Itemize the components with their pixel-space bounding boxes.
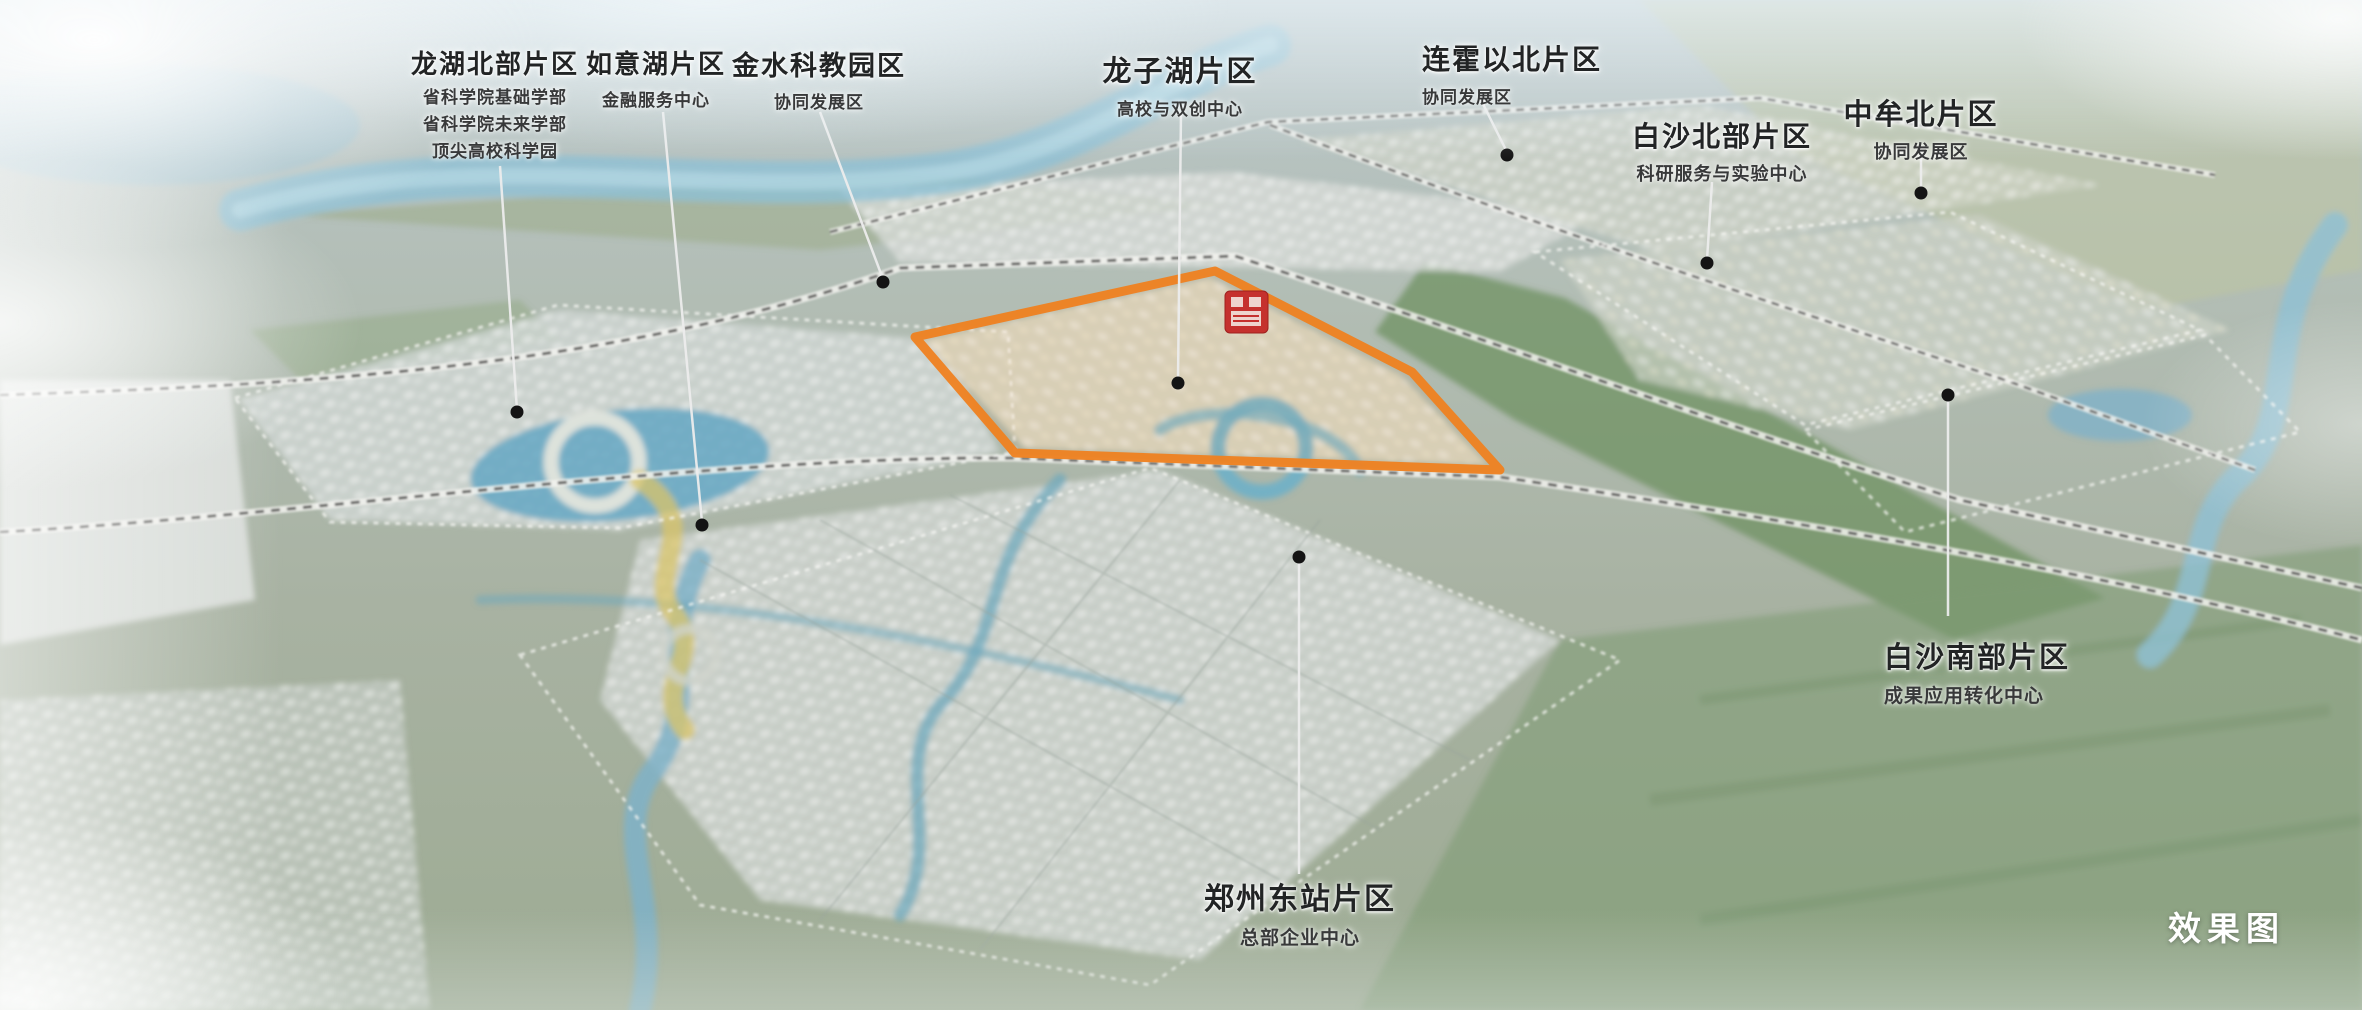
district-subtitle: 成果应用转化中心 (1884, 681, 2070, 708)
planning-render-image: 龙湖北部片区 省科学院基础学部 省科学院未来学部 顶尖高校科学园 如意湖片区 金… (0, 0, 2362, 1010)
district-label-baisha-south: 白沙南部片区 成果应用转化中心 (1884, 634, 2070, 708)
district-title: 龙子湖片区 (1102, 48, 1257, 90)
district-title: 白沙南部片区 (1884, 634, 2070, 676)
leader-dot-longzihu (1172, 377, 1185, 390)
district-subtitle: 总部企业中心 (1204, 923, 1396, 950)
leader-dot-ruyihu (696, 519, 709, 532)
district-label-zhongmou: 中牟北片区 协同发展区 (1843, 91, 1998, 164)
red-seal-icon (1225, 291, 1268, 333)
leader-dot-longhu-north (511, 406, 524, 419)
district-subtitle: 省科学院未来学部 (411, 110, 579, 135)
leader-dot-zhongmou (1915, 187, 1928, 200)
district-label-east-station: 郑州东站片区 总部企业中心 (1204, 874, 1396, 950)
district-label-lianhuo: 连霍以北片区 协同发展区 (1422, 38, 1602, 108)
leader-dot-jinshui (877, 276, 890, 289)
district-label-longhu-north: 龙湖北部片区 省科学院基础学部 省科学院未来学部 顶尖高校科学园 (411, 44, 579, 162)
district-subtitle: 高校与双创中心 (1102, 95, 1257, 120)
district-title: 如意湖片区 (586, 44, 726, 81)
district-title: 中牟北片区 (1843, 91, 1998, 133)
district-label-ruyihu: 如意湖片区 金融服务中心 (586, 44, 726, 111)
district-subtitle: 省科学院基础学部 (411, 83, 579, 108)
district-subtitle: 顶尖高校科学园 (411, 137, 579, 162)
district-title: 郑州东站片区 (1204, 874, 1396, 918)
district-subtitle: 科研服务与实验中心 (1632, 160, 1812, 186)
district-subtitle: 协同发展区 (1422, 83, 1602, 108)
district-label-baisha-north: 白沙北部片区 科研服务与实验中心 (1632, 115, 1812, 186)
district-title: 金水科教园区 (732, 44, 906, 83)
leader-dot-east-station (1293, 551, 1306, 564)
district-label-jinshui: 金水科教园区 协同发展区 (732, 44, 906, 113)
pond-right (2048, 389, 2192, 441)
leader-dot-lianhuo (1501, 149, 1514, 162)
district-title: 连霍以北片区 (1422, 38, 1602, 78)
leader-dot-baisha-south (1942, 389, 1955, 402)
district-subtitle: 协同发展区 (732, 88, 906, 113)
district-title: 白沙北部片区 (1632, 115, 1812, 155)
district-subtitle: 金融服务中心 (586, 86, 726, 111)
district-label-longzihu: 龙子湖片区 高校与双创中心 (1102, 48, 1257, 120)
district-title: 龙湖北部片区 (411, 44, 579, 81)
render-caption: 效果图 (2168, 902, 2285, 950)
map-background (0, 0, 2362, 1010)
district-subtitle: 协同发展区 (1843, 138, 1998, 164)
leader-dot-baisha-north (1701, 257, 1714, 270)
